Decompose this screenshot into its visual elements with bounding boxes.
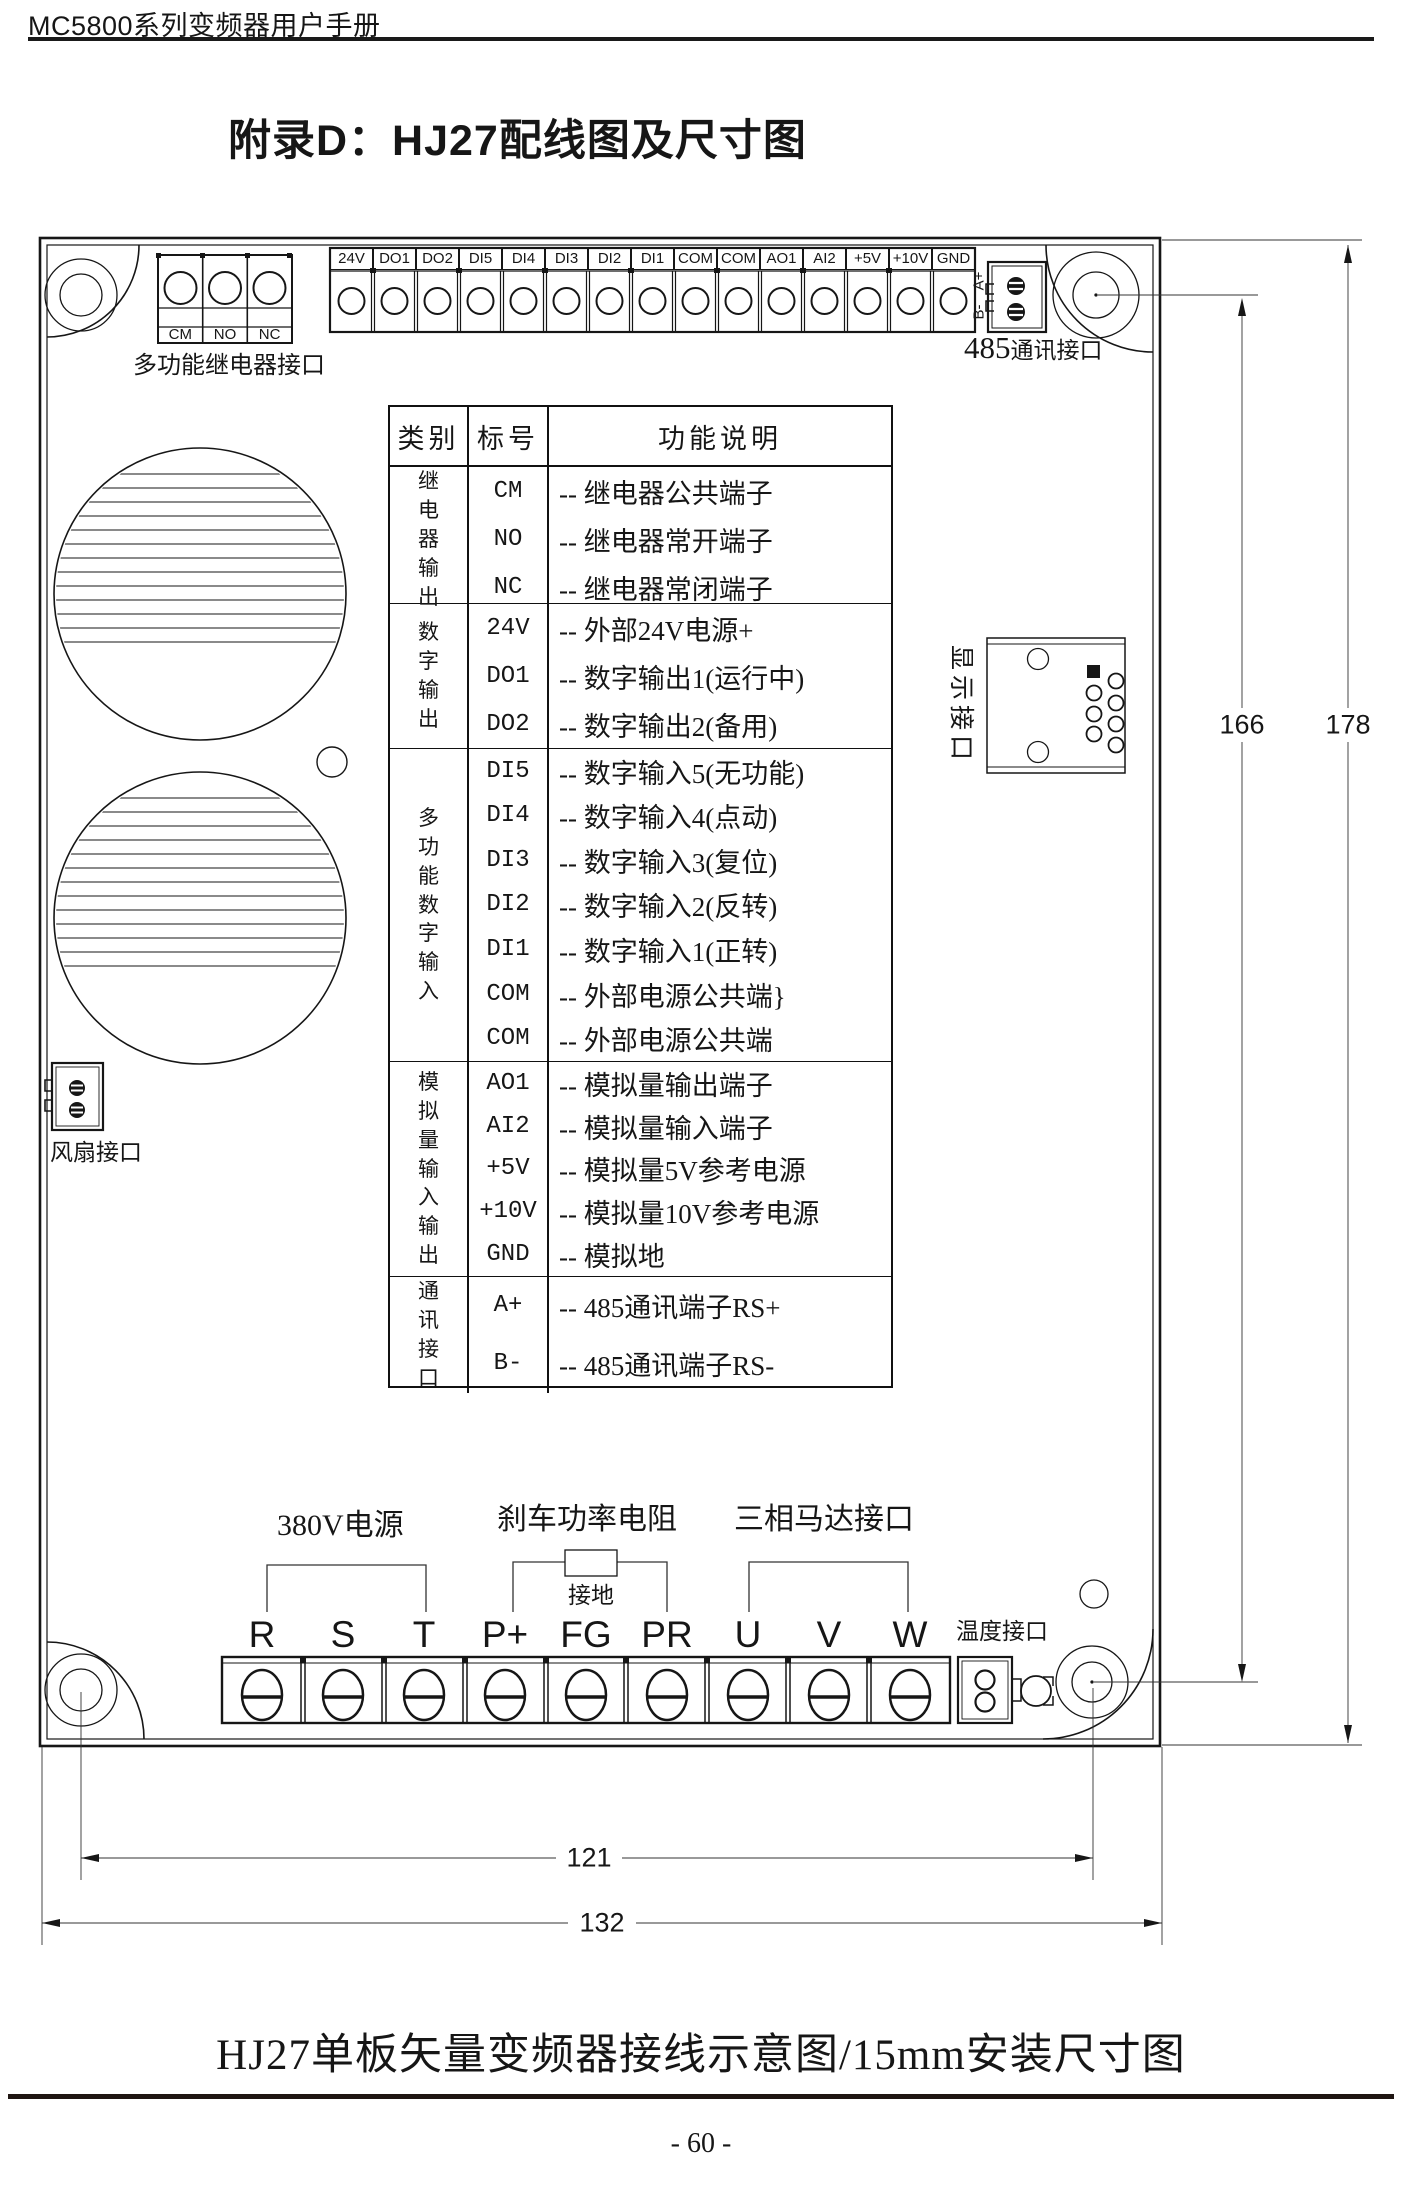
terminal-label-s: S xyxy=(331,1614,356,1656)
dimension-121: 121 xyxy=(561,1843,616,1874)
table-cell-label: B- xyxy=(469,1350,547,1377)
table-cell-label: +5V xyxy=(469,1155,547,1182)
terminal-label: DI2 xyxy=(588,248,631,270)
table-cell-label: DO1 xyxy=(469,663,547,690)
display-connector xyxy=(987,638,1125,773)
ground-label: 接地 xyxy=(568,1576,614,1610)
terminal-label: +10V xyxy=(889,248,932,270)
table-cell-desc: -- 485通讯端子RS+ xyxy=(549,1286,891,1325)
table-cell-desc: -- 数字输入1(正转) xyxy=(549,930,891,969)
table-header-row: 类别 标号 功能说明 xyxy=(390,407,891,467)
terminal-label: DI1 xyxy=(631,248,674,270)
comm-485-caption: 485通讯接口 xyxy=(964,330,1103,366)
table-cell-desc: -- 继电器常闭端子 xyxy=(549,568,891,607)
comm-485-number: 485 xyxy=(964,330,1011,365)
table-cell-label: DI4 xyxy=(469,802,547,829)
fan-connector xyxy=(45,1063,103,1130)
table-cell-label: DI5 xyxy=(469,758,547,785)
table-cell-desc: -- 继电器常开端子 xyxy=(549,520,891,559)
terminal-label-v: V xyxy=(817,1614,842,1656)
table-cell-label: CM xyxy=(469,478,547,505)
table-cell-desc: -- 数字输出2(备用) xyxy=(549,705,891,744)
brake-group-label: 刹车功率电阻 xyxy=(497,1494,677,1538)
table-section-digital-output: 数字输出 24V DO1 DO2 -- 外部24V电源+ -- 数字输出1(运行… xyxy=(390,603,891,748)
table-section-digital-input: 多功能数字输入 DI5 DI4 DI3 DI2 DI1 COM COM -- 数… xyxy=(390,748,891,1061)
table-cell-label: GND xyxy=(469,1241,547,1268)
table-cell-desc: -- 485通讯端子RS- xyxy=(549,1344,891,1383)
table-cell-label: NC xyxy=(469,574,547,601)
terminal-label: DI5 xyxy=(459,248,502,270)
category-label: 模拟量输入输出 xyxy=(417,1068,441,1271)
terminal-label: DO2 xyxy=(416,248,459,270)
footer-rule xyxy=(8,2094,1394,2099)
fan-port-label: 风扇接口 xyxy=(50,1133,142,1167)
table-cell-desc: -- 模拟量10V参考电源 xyxy=(549,1192,891,1231)
table-cell-desc: -- 模拟量5V参考电源 xyxy=(549,1149,891,1188)
terminal-label: AI2 xyxy=(803,248,846,270)
terminal-label-u: U xyxy=(735,1614,762,1656)
col-header-label: 标号 xyxy=(469,407,549,465)
table-cell-desc: -- 数字输入2(反转) xyxy=(549,885,891,924)
terminal-label: DO1 xyxy=(373,248,416,270)
table-cell-label: AO1 xyxy=(469,1070,547,1097)
table-cell-desc: -- 数字输入5(无功能) xyxy=(549,752,891,791)
table-cell-label: DI1 xyxy=(469,936,547,963)
table-cell-desc: -- 模拟地 xyxy=(549,1235,891,1274)
terminal-label-fg: FG xyxy=(560,1614,611,1656)
terminal-label: COM xyxy=(674,248,717,270)
table-cell-label: COM xyxy=(469,1025,547,1052)
terminal-label: AO1 xyxy=(760,248,803,270)
table-cell-label: AI2 xyxy=(469,1113,547,1140)
terminal-label: COM xyxy=(717,248,760,270)
table-cell-desc: -- 模拟量输入端子 xyxy=(549,1107,891,1146)
relay-label: CM xyxy=(158,327,203,343)
table-cell-desc: -- 外部电源公共端} xyxy=(549,975,891,1014)
power-group-label: 380V电源 xyxy=(277,1500,404,1544)
table-cell-label: COM xyxy=(469,981,547,1008)
dimension-166: 166 xyxy=(1214,710,1269,741)
table-cell-label: DI2 xyxy=(469,891,547,918)
terminal-label-pplus: P+ xyxy=(482,1614,528,1656)
table-cell-desc: -- 外部24V电源+ xyxy=(549,609,891,648)
col-header-category: 类别 xyxy=(390,407,469,465)
col-header-description: 功能说明 xyxy=(549,407,891,465)
table-section-relay-output: 继电器输出 CM NO NC -- 继电器公共端子 -- 继电器常开端子 -- … xyxy=(390,467,891,603)
figure-caption: HJ27单板矢量变频器接线示意图/15mm安装尺寸图 xyxy=(0,2020,1402,2082)
terminal-label: DI3 xyxy=(545,248,588,270)
comm-485-text: 通讯接口 xyxy=(1011,338,1103,363)
relay-label: NC xyxy=(247,327,292,343)
page-number: - 60 - xyxy=(0,2128,1402,2160)
terminal-label: 24V xyxy=(330,248,373,270)
comm-485-connector xyxy=(986,262,1046,332)
category-label: 数字输出 xyxy=(417,618,441,734)
relay-terminal-labels: CM NO NC xyxy=(158,327,292,343)
motor-group-label: 三相马达接口 xyxy=(734,1494,914,1538)
terminal-label: GND xyxy=(932,248,975,270)
relay-connector-caption: 多功能继电器接口 xyxy=(133,345,325,380)
table-cell-desc: -- 模拟量输出端子 xyxy=(549,1064,891,1103)
category-label: 继电器输出 xyxy=(417,467,441,612)
table-cell-desc: -- 数字输出1(运行中) xyxy=(549,657,891,696)
table-cell-desc: -- 数字输入3(复位) xyxy=(549,841,891,880)
table-cell-label: NO xyxy=(469,526,547,553)
terminal-label: +5V xyxy=(846,248,889,270)
terminal-function-table: 类别 标号 功能说明 继电器输出 CM NO NC -- 继电器公共端子 -- … xyxy=(388,405,893,1388)
table-cell-desc: -- 数字输入4(点动) xyxy=(549,796,891,835)
dimension-132: 132 xyxy=(574,1908,629,1939)
dimension-178: 178 xyxy=(1320,710,1375,741)
terminal-label: DI4 xyxy=(502,248,545,270)
relay-label: NO xyxy=(203,327,248,343)
category-label: 多功能数字输入 xyxy=(417,804,441,1007)
table-section-analog-io: 模拟量输入输出 AO1 AI2 +5V +10V GND -- 模拟量输出端子 … xyxy=(390,1061,891,1276)
terminal-label-w: W xyxy=(893,1614,928,1656)
bottom-terminal-strip xyxy=(222,1657,950,1723)
category-label: 通讯接口 xyxy=(417,1277,441,1393)
table-cell-label: DO2 xyxy=(469,711,547,738)
capacitor-circles xyxy=(54,448,347,1064)
table-cell-desc: -- 继电器公共端子 xyxy=(549,472,891,511)
pin-b-minus-label: B- xyxy=(971,305,988,320)
table-cell-label: +10V xyxy=(469,1198,547,1225)
top-terminal-labels: 24V DO1 DO2 DI5 DI4 DI3 DI2 DI1 COM COM … xyxy=(330,248,975,270)
temp-port-label: 温度接口 xyxy=(956,1612,1048,1646)
pin-a-plus-label: A+ xyxy=(971,272,988,291)
table-cell-label: DI3 xyxy=(469,847,547,874)
table-cell-label: A+ xyxy=(469,1292,547,1319)
terminal-label-r: R xyxy=(249,1614,276,1656)
table-cell-label: 24V xyxy=(469,615,547,642)
table-cell-desc: -- 外部电源公共端 xyxy=(549,1019,891,1058)
manual-page: MC5800系列变频器用户手册 附录D：HJ27配线图及尺寸图 xyxy=(0,0,1402,2185)
table-section-comm: 通讯接口 A+ B- -- 485通讯端子RS+ -- 485通讯端子RS- xyxy=(390,1276,891,1380)
display-port-label: 显示接口 xyxy=(945,645,981,765)
terminal-label-t: T xyxy=(413,1614,436,1656)
terminal-label-pr: PR xyxy=(641,1614,692,1656)
